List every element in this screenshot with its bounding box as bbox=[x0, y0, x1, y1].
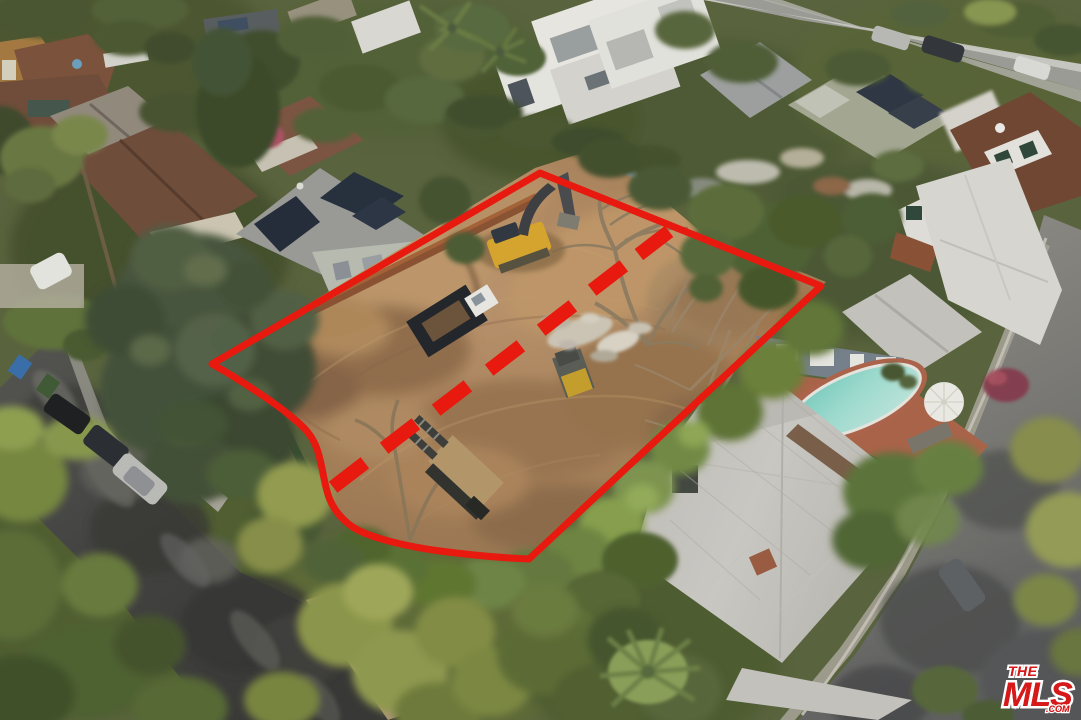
svg-text:.COM: .COM bbox=[1046, 704, 1070, 714]
